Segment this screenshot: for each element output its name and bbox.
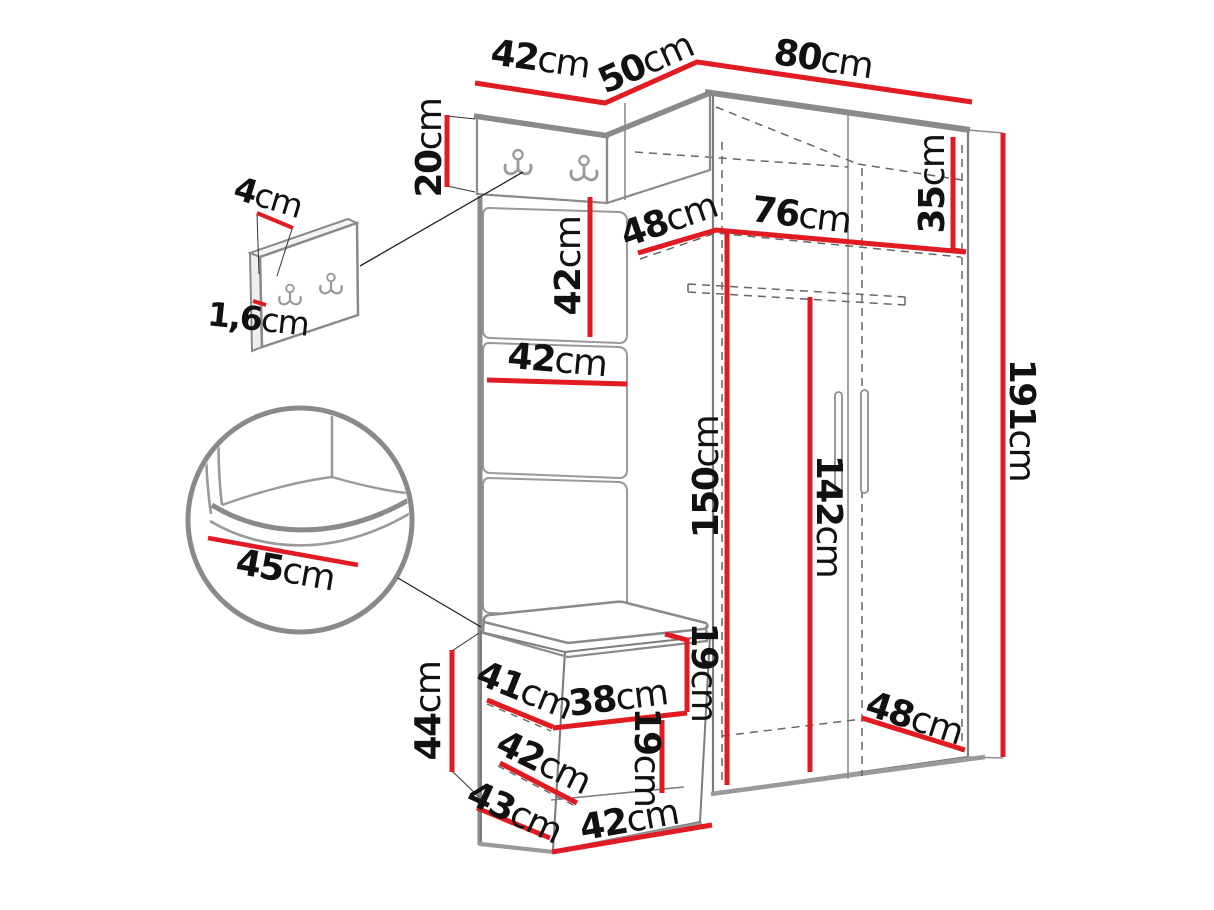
hook-board <box>474 93 710 203</box>
dim-value: 19 <box>683 623 724 670</box>
dim-label-bench-opening-upper-19: 19cm <box>685 623 721 722</box>
dim-value: 44 <box>408 713 449 760</box>
dim-value: 76 <box>749 189 801 235</box>
dim-value: 35 <box>912 186 953 233</box>
dim-value: 191 <box>1001 359 1042 430</box>
dim-unit: cm <box>259 300 310 344</box>
dim-label-total-height-191: 191cm <box>1003 359 1039 482</box>
dim-value: 42 <box>577 801 631 850</box>
dim-unit: cm <box>279 550 337 599</box>
dim-unit: cm <box>409 99 450 151</box>
dim-unit: cm <box>535 39 592 87</box>
dim-label-hook-board-height-20: 20cm <box>412 99 448 198</box>
dim-label-hook-panel-thickness-1-6: 1,6cm <box>206 297 310 340</box>
dim-label-bench-height-44: 44cm <box>411 662 447 761</box>
dim-unit: cm <box>808 525 849 577</box>
seat-detail-circle <box>188 397 426 632</box>
dim-value: 20 <box>409 150 450 197</box>
dim-unit: cm <box>686 416 727 468</box>
dim-value: 1,6 <box>206 294 264 338</box>
dim-unit: cm <box>683 670 724 722</box>
dim-label-bench-opening-lower-19: 19cm <box>628 708 664 807</box>
dim-unit: cm <box>796 195 852 242</box>
dim-value: 80 <box>771 32 824 80</box>
dim-label-upholstered-panel-42: 42cm <box>551 217 587 316</box>
dim-label-rail-height-142: 142cm <box>810 455 846 578</box>
dim-value: 142 <box>808 455 849 526</box>
dim-unit: cm <box>408 662 449 714</box>
dim-unit: cm <box>553 340 608 385</box>
dim-unit: cm <box>818 39 875 87</box>
dim-value: 38 <box>566 678 618 724</box>
dim-value: 150 <box>686 468 727 539</box>
dim-unit: cm <box>548 217 589 269</box>
dim-label-hanging-space-150: 150cm <box>689 416 725 539</box>
dim-unit: cm <box>1001 429 1042 481</box>
dim-value: 19 <box>626 708 667 755</box>
furniture-dimension-diagram: 42cm 50cm 80cm 20cm 4cm 1,6cm 42cm 48cm … <box>0 0 1214 910</box>
dim-unit: cm <box>912 135 953 187</box>
dim-label-top-shelf-height-35: 35cm <box>915 135 951 234</box>
dim-label-panel-width-42: 42cm <box>506 339 608 383</box>
dim-value: 42 <box>548 268 589 315</box>
dim-value: 42 <box>488 32 540 79</box>
dim-value: 42 <box>506 336 557 381</box>
dim-value: 45 <box>233 542 287 591</box>
